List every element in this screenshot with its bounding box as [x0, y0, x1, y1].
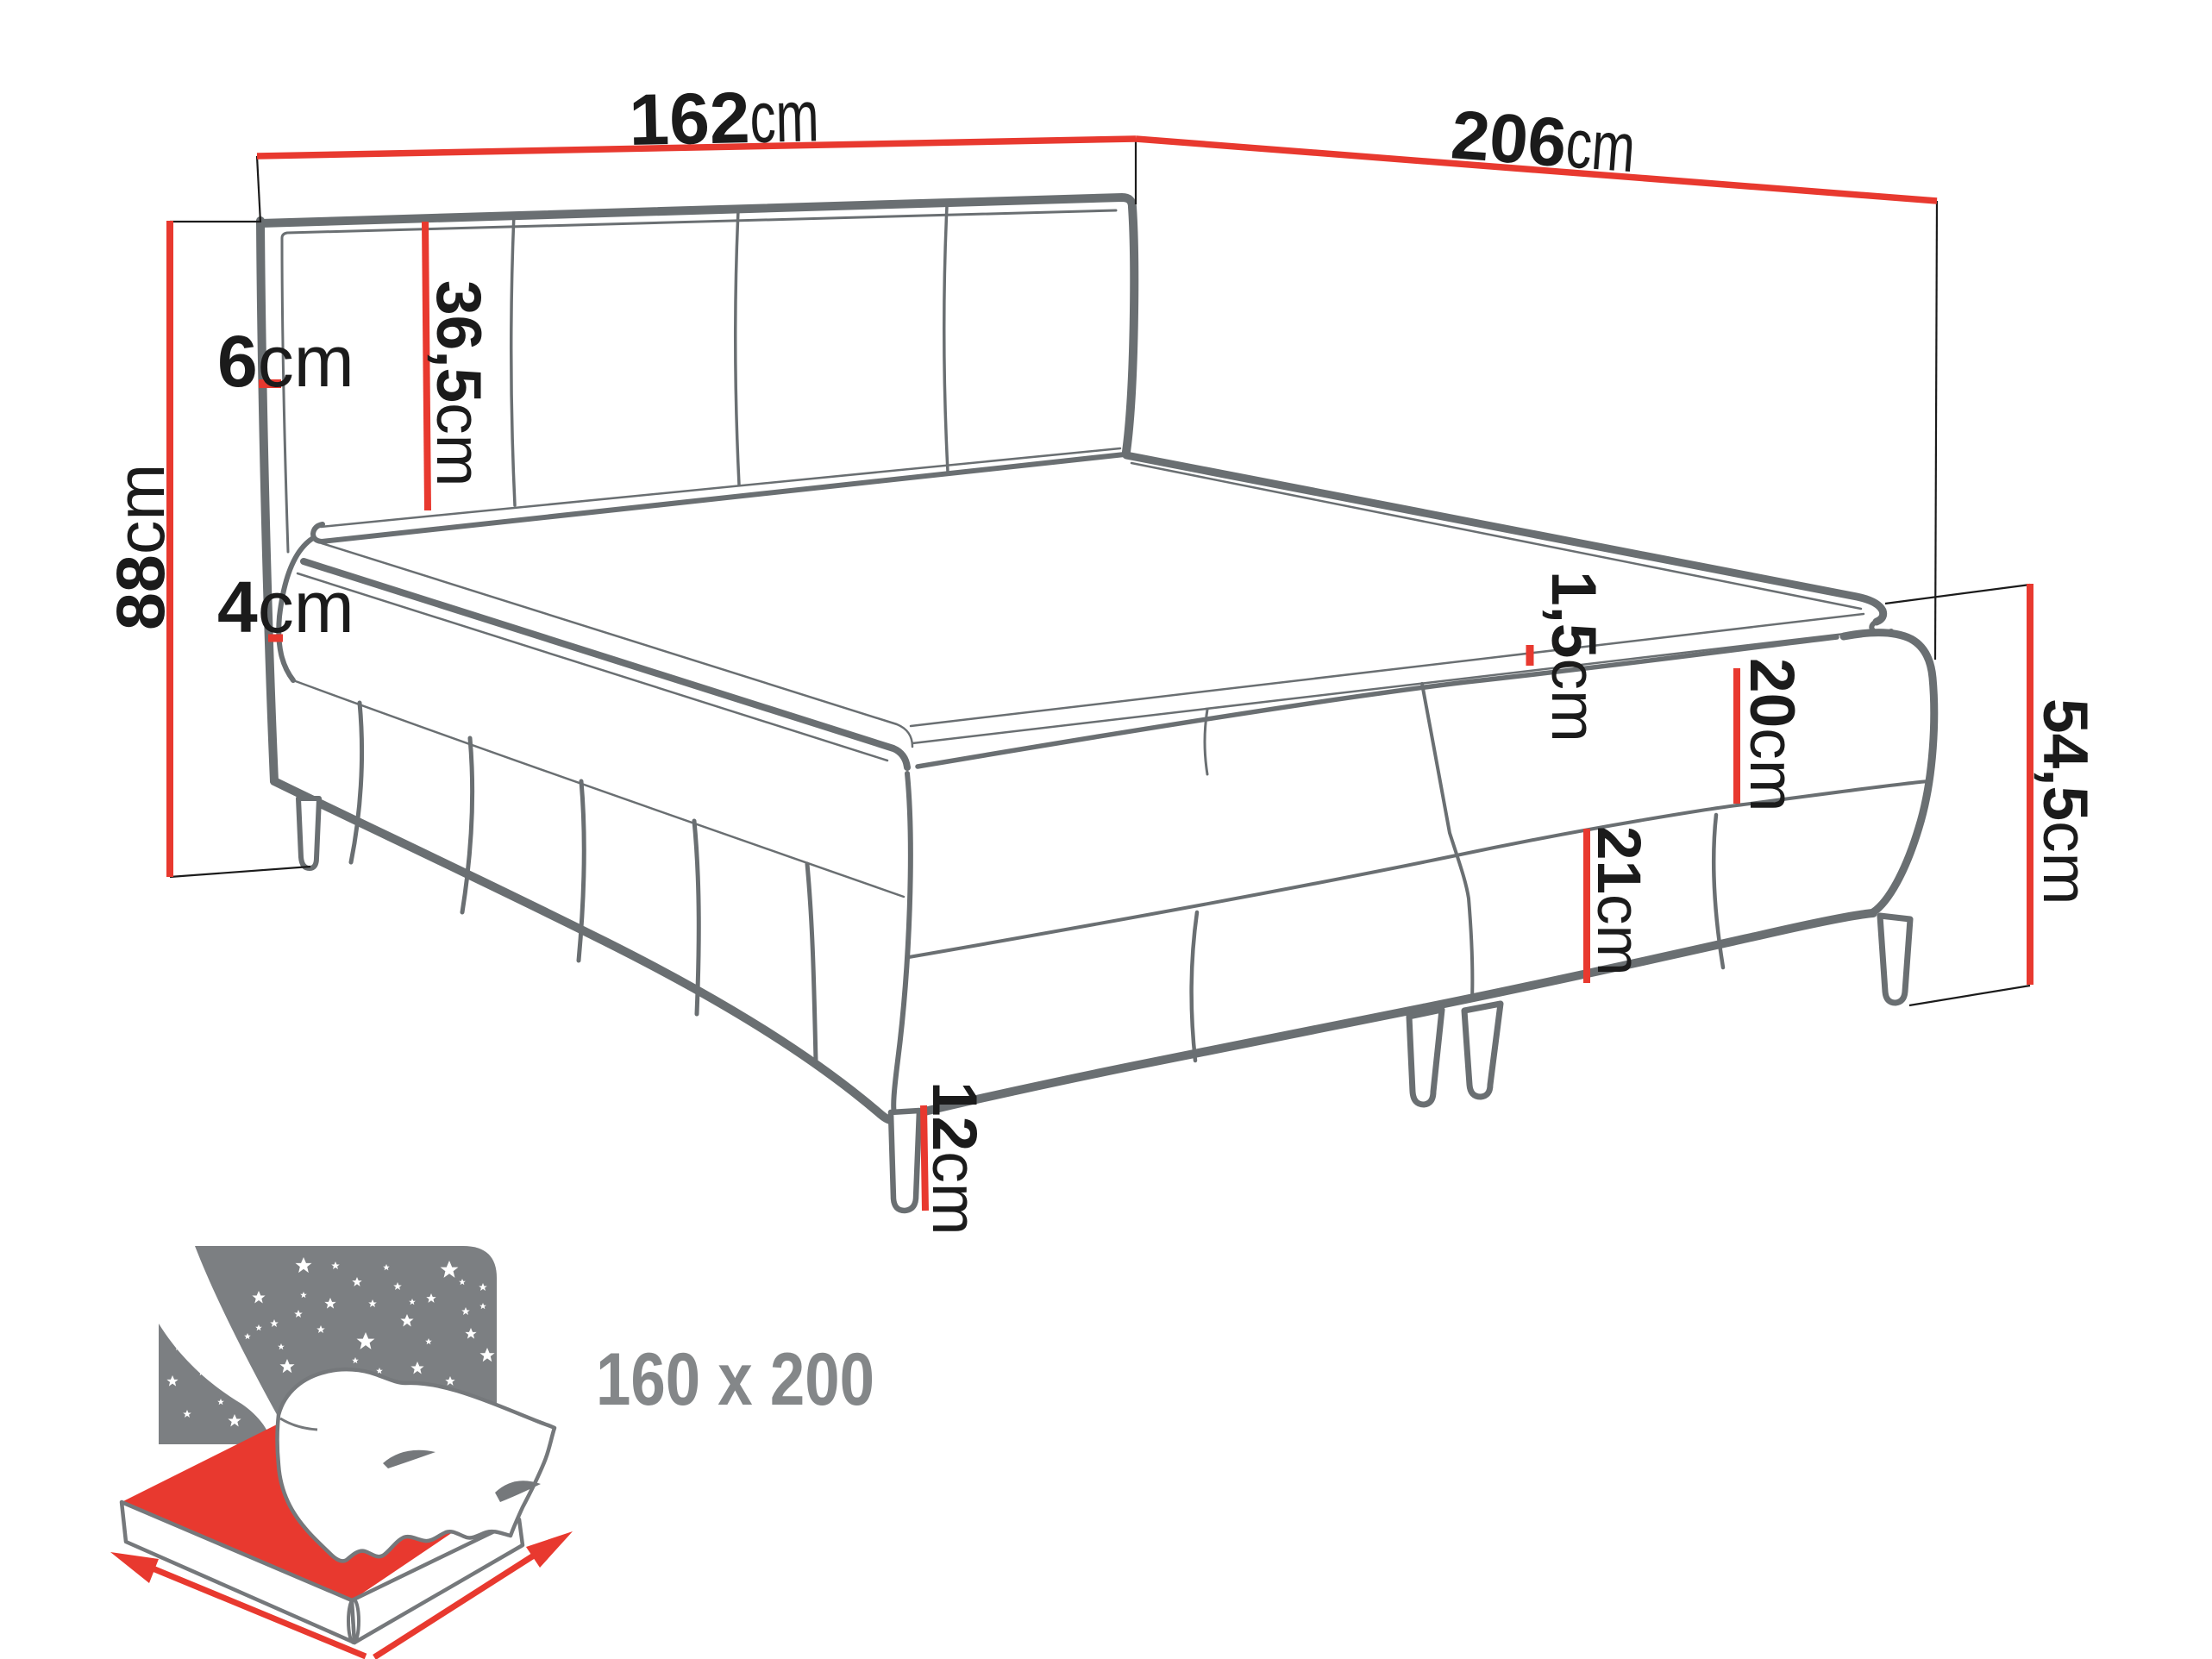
svg-text:1,5cm: 1,5cm — [1538, 571, 1608, 742]
svg-text:20cm: 20cm — [1737, 658, 1807, 812]
svg-text:88cm: 88cm — [102, 464, 179, 630]
svg-text:54,5cm: 54,5cm — [2030, 698, 2100, 905]
svg-text:36,5cm: 36,5cm — [423, 280, 493, 486]
svg-text:206cm: 206cm — [1449, 96, 1639, 186]
svg-text:21cm: 21cm — [1584, 826, 1652, 976]
svg-text:160 x 200: 160 x 200 — [596, 1338, 874, 1421]
svg-text:6cm: 6cm — [217, 321, 354, 402]
svg-text:12cm: 12cm — [919, 1081, 989, 1236]
svg-text:4cm: 4cm — [217, 567, 354, 648]
svg-text:162cm: 162cm — [628, 75, 819, 160]
